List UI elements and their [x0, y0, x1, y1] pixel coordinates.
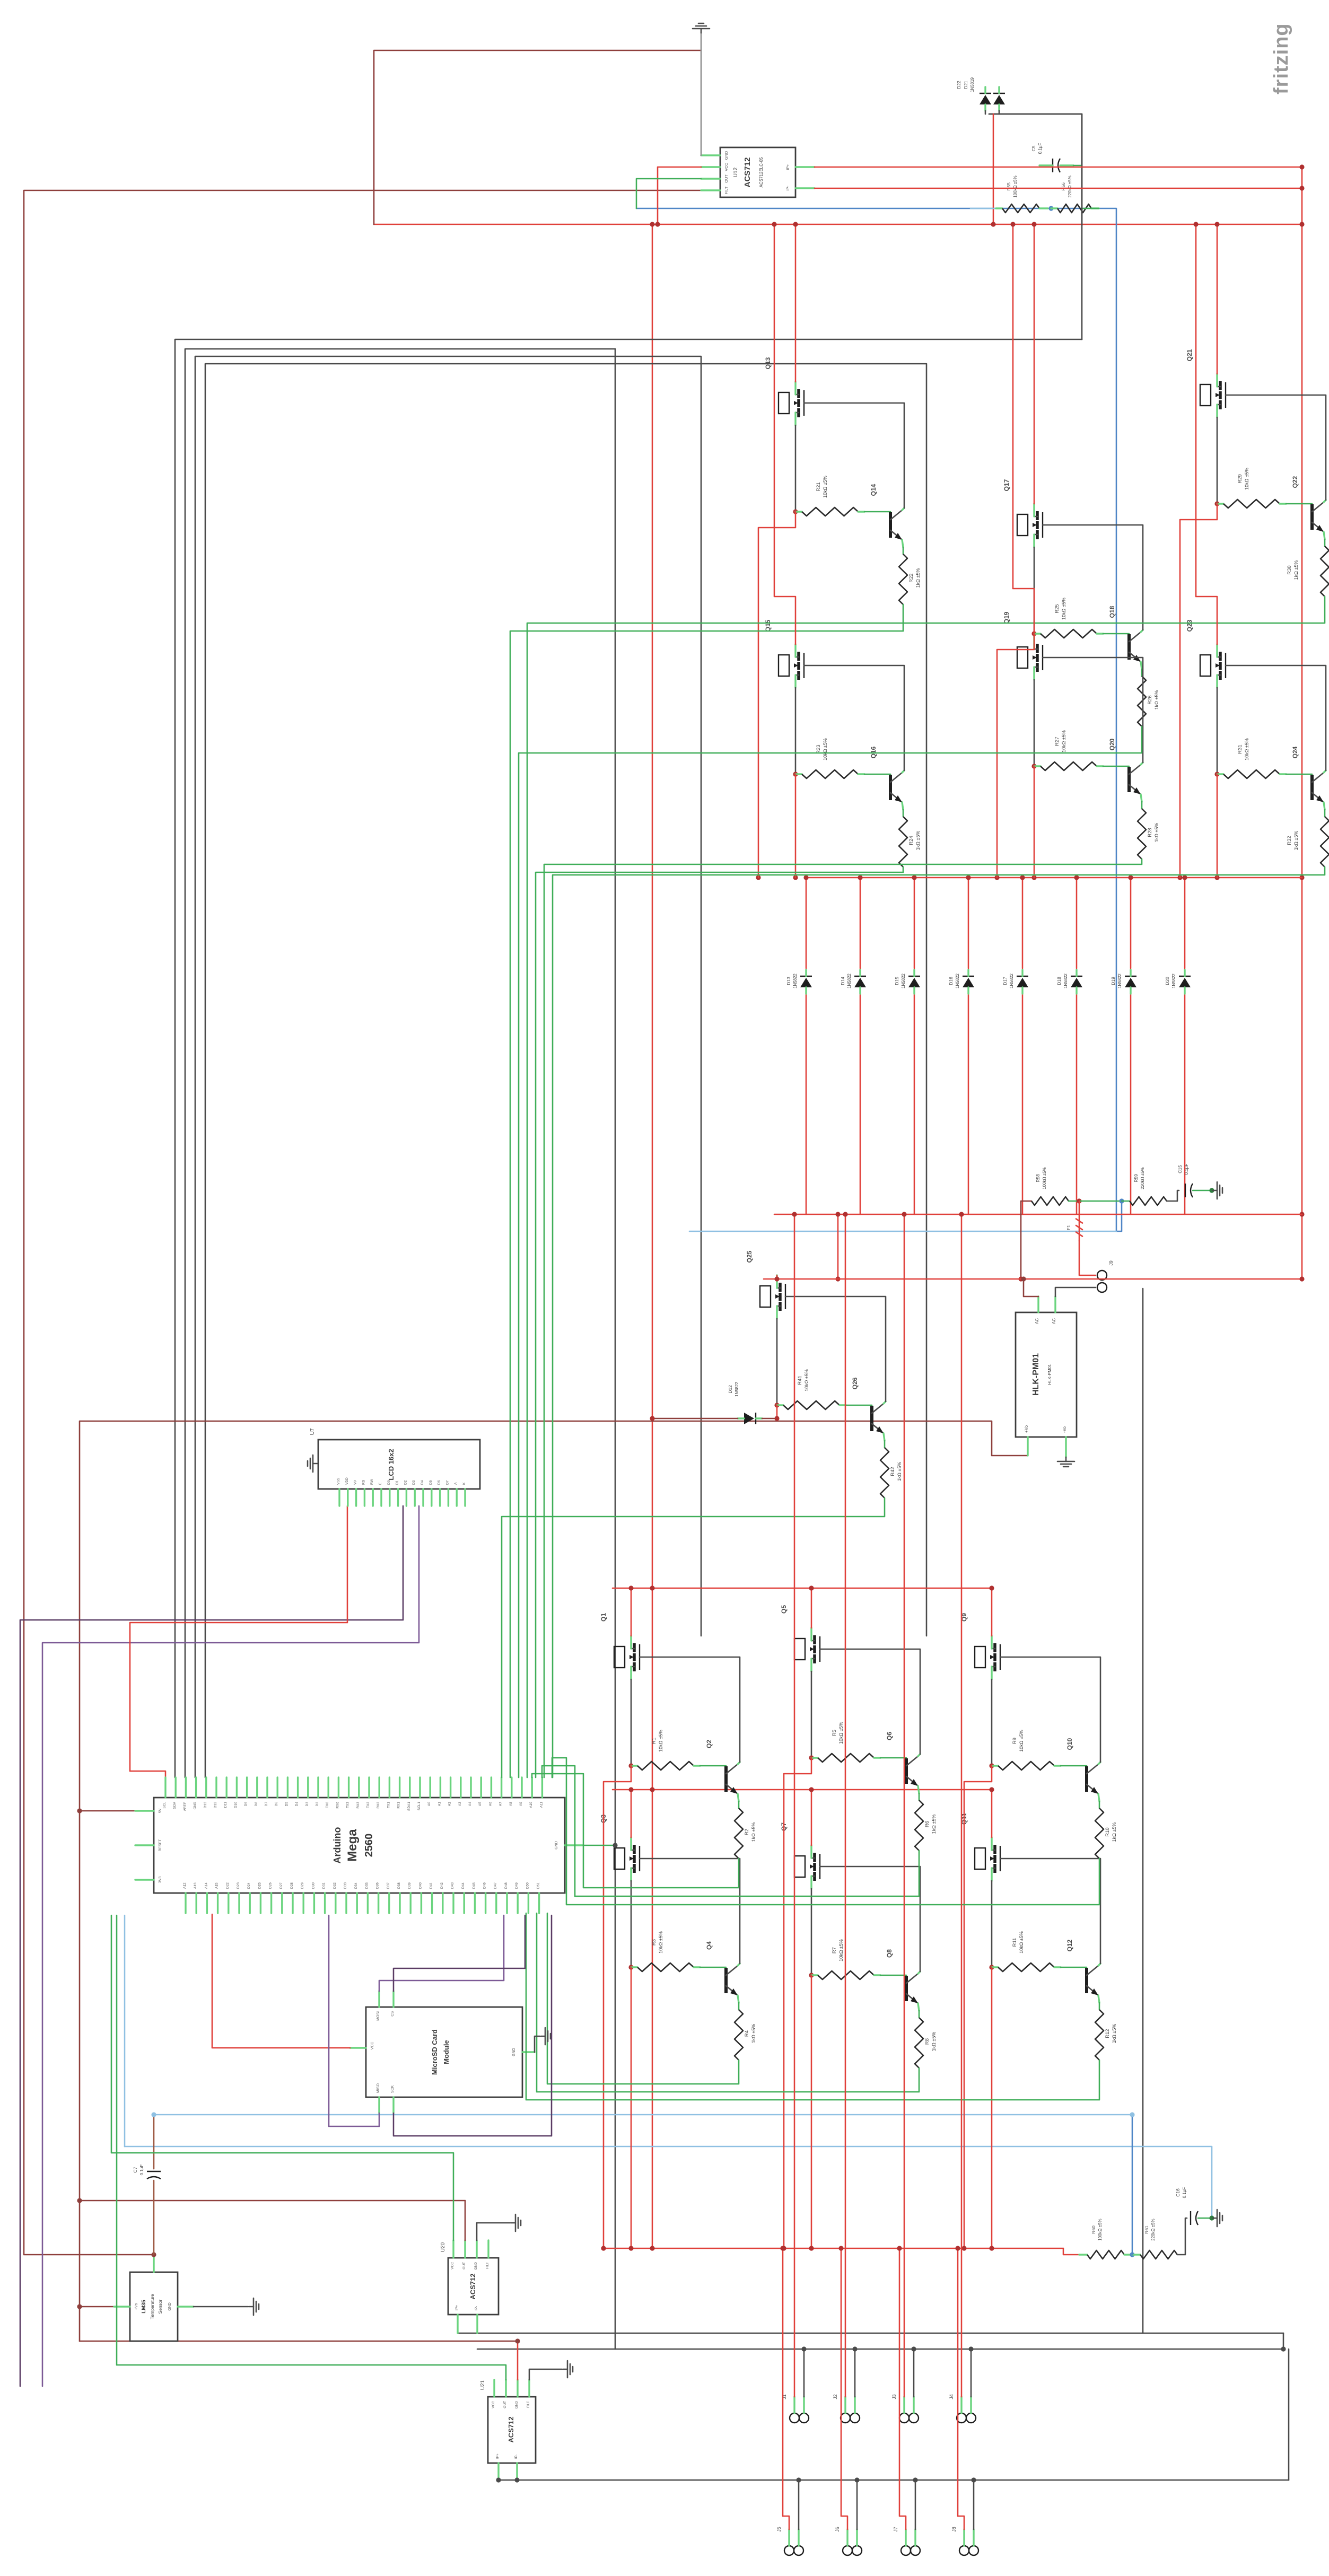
component-hlk-pm01[interactable]: HLK-PM01HLK-PM01ACAC+Vo-Vo	[1016, 1296, 1077, 1457]
r-base-ref: R30	[1287, 565, 1292, 574]
resistor	[1095, 2010, 1104, 2060]
out-lower	[784, 1758, 811, 2248]
npn-ref: Q26	[851, 1377, 859, 1389]
r-gate-ref: R21	[816, 482, 821, 491]
r-gate-value: 10kΩ ±5%	[1244, 468, 1249, 490]
r-gate-ref: R7	[832, 1947, 837, 1953]
terminal-pin	[969, 2546, 978, 2555]
junction-dot	[628, 1787, 633, 1792]
acs712-name: ACS712	[507, 2416, 515, 2442]
arduino-pin-label: RX3	[356, 1802, 360, 1809]
arduino-pin-label: D42	[440, 1882, 444, 1889]
junction-dot	[1299, 1276, 1304, 1281]
junction-dot	[1010, 222, 1015, 226]
junction-dot	[515, 2338, 520, 2343]
diode-triangle	[1125, 978, 1136, 987]
output-terminal[interactable]: J2	[833, 2394, 860, 2423]
mosfet-body	[779, 655, 789, 676]
terminal-pin	[790, 2413, 799, 2423]
lcd-pin-label: D6	[438, 1480, 441, 1485]
resistor	[915, 2018, 923, 2068]
junction-dot	[628, 2246, 633, 2250]
wire	[1043, 658, 1143, 763]
mosfet-driver-cell[interactable]: Q17R2510kΩ ±5%Q18R261kΩ ±5%	[1003, 479, 1159, 726]
resistor-value: 220kΩ ±5%	[1068, 176, 1072, 198]
diode-ref: D12	[728, 1385, 733, 1394]
junction-dot	[1021, 1276, 1026, 1281]
acs712-pin-label: OUT	[462, 2262, 466, 2270]
mosfet-body	[794, 1639, 805, 1660]
mosfet-body	[1017, 514, 1028, 536]
arduino-pin-label: D46	[483, 1882, 487, 1889]
hlk-body	[1016, 1312, 1077, 1437]
npn-ref: Q22	[1291, 476, 1299, 488]
lcd-ref: U7	[310, 1428, 316, 1435]
diode-triangle	[744, 1413, 754, 1424]
r-base-ref: R10	[1105, 1827, 1111, 1836]
junction-dot	[809, 1585, 814, 1590]
rc-network-mid[interactable]: R58100kΩ ±5%R59220kΩ ±5%C150.1µFF1	[1018, 1164, 1222, 1282]
mosfet-driver-cell[interactable]: Q3R310kΩ ±5%Q4R41kΩ ±5%	[600, 1815, 756, 2060]
output-terminal[interactable]: J1	[782, 2394, 809, 2423]
arduino-pin-label: D31	[322, 1882, 326, 1889]
cap-ref: C15	[1177, 1165, 1183, 1173]
junction-dot	[911, 2346, 916, 2351]
r-gate-ref: R25	[1054, 604, 1060, 613]
arduino-pin-label: D24	[247, 1882, 251, 1889]
lcd-pin-label: V0	[354, 1480, 357, 1485]
fritzing-watermark: fritzing	[1270, 23, 1292, 94]
arduino-pin-label: GND	[555, 1841, 558, 1850]
mosfet-driver-cell[interactable]: Q7R710kΩ ±5%Q8R81kΩ ±5%	[780, 1823, 937, 2068]
terminal-pin	[909, 2413, 919, 2423]
arduino-pin-label: A14	[204, 1882, 208, 1889]
r-gate-value: 10kΩ ±5%	[823, 476, 828, 498]
r-gate-ref: R1	[651, 1738, 657, 1744]
resistor-value: 100kΩ ±5%	[1098, 2219, 1103, 2241]
mosfet-ref: Q19	[1003, 611, 1010, 624]
terminal-pin	[794, 2546, 803, 2555]
junction-dot	[955, 2246, 960, 2250]
pin-stub	[902, 802, 903, 810]
resistor	[783, 1401, 840, 1409]
wire-acs3-gnd	[529, 2369, 562, 2380]
junction-dot	[792, 1212, 797, 1216]
component-lcd[interactable]: U7LCD 16x2VSSVDDV0RSRWED0D1D2D3D4D5D6D7A…	[308, 1428, 480, 1506]
arduino-pin-label: D7	[265, 1802, 268, 1807]
arduino-pin-label: D45	[472, 1882, 476, 1889]
resistor	[637, 1762, 694, 1770]
r-gate-value: 10kΩ ±5%	[1244, 738, 1249, 760]
diode-triangle	[1179, 978, 1191, 987]
fuse-ref: F1	[1066, 1225, 1071, 1230]
r-base-value: 1kΩ ±5%	[751, 1823, 756, 1842]
wire	[1087, 1764, 1098, 1774]
mosfet-body	[1200, 655, 1211, 676]
arduino-pin-label: 3V3	[159, 1877, 162, 1883]
r-base-value: 1kΩ ±5%	[915, 831, 921, 851]
junction-dot	[1031, 222, 1036, 226]
resistor	[1321, 817, 1329, 867]
terminal-pin	[843, 2546, 852, 2555]
resistor	[1223, 770, 1280, 778]
out-lower	[964, 1766, 992, 2248]
r-gate-ref: R31	[1237, 744, 1243, 753]
terminal-pin	[1097, 1283, 1107, 1292]
wire	[906, 1756, 918, 1766]
resistor	[1140, 2250, 1177, 2259]
ctl-green-upper	[519, 726, 1142, 1777]
resistor	[802, 507, 858, 516]
arduino-pin-label: D4	[295, 1802, 299, 1807]
wire-long-b	[185, 349, 615, 1777]
acs712-pin-label: VCC	[724, 163, 729, 171]
hlk-pin-label: +Vo	[1024, 1425, 1029, 1433]
wire-acs1-out	[636, 179, 701, 208]
arduino-pin-label: D22	[226, 1882, 230, 1889]
arduino-pin-label: RESET	[159, 1839, 162, 1852]
arduino-pin-label: TX2	[366, 1802, 370, 1808]
junction-dot	[968, 2346, 973, 2351]
arduino-pin-label: A2	[448, 1802, 452, 1806]
output-terminal[interactable]: J3	[891, 2394, 919, 2423]
mosfet-driver-cell[interactable]: Q9R910kΩ ±5%Q10R101kΩ ±5%	[960, 1613, 1117, 1859]
hlk-sub: HLK-PM01	[1047, 1364, 1052, 1385]
output-terminal[interactable]: J6	[835, 2527, 862, 2555]
diode-part: 1N5822	[847, 973, 852, 988]
wire	[1312, 773, 1324, 782]
arduino-pin-label: A4	[468, 1802, 472, 1806]
resistor	[802, 770, 858, 778]
junction-dot	[912, 875, 916, 880]
pin-stub	[884, 1433, 885, 1441]
terminal-pin	[784, 2546, 794, 2555]
junction-dot	[650, 2246, 654, 2250]
arduino-pin-label: D25	[258, 1882, 261, 1889]
arduino-pin-label: GND	[194, 1802, 197, 1810]
terminal-pin	[911, 2546, 920, 2555]
arduino-pin-label: AREF	[183, 1802, 187, 1811]
mosfet-driver-cell[interactable]: Q5R510kΩ ±5%Q6R61kΩ ±5%	[780, 1605, 937, 1851]
junction-dot	[772, 222, 776, 226]
flyback-diode-bank[interactable]: D131N5822D141N5822D151N5822D161N5822D171…	[756, 875, 1302, 1281]
arduino-pin-label: D10	[234, 1802, 238, 1808]
arduino-pin-label: TX1	[387, 1802, 390, 1808]
arduino-pin-label: A1	[438, 1802, 441, 1806]
junction-dot	[780, 2246, 785, 2250]
r-gate-value: 10kΩ ±5%	[658, 1730, 663, 1752]
wire	[1000, 1657, 1100, 1762]
lm35-name-1: LM35	[141, 2300, 147, 2314]
junction-dot	[1020, 875, 1025, 880]
ground-symbol	[1213, 1182, 1222, 1199]
mosfet-ref: Q15	[764, 619, 772, 632]
diode-part: 1N5822	[1063, 973, 1068, 988]
wire	[1000, 1859, 1100, 1964]
terminal-pin	[966, 2413, 976, 2423]
wire	[872, 1404, 884, 1413]
ground-symbol	[308, 1455, 317, 1472]
arduino-pin-label: D30	[311, 1882, 315, 1889]
lcd-pin-label: E	[379, 1482, 382, 1485]
junction-dot	[991, 222, 995, 226]
arduino-pin-label: A6	[488, 1802, 492, 1806]
rc-network-top[interactable]: D211N5819D22C50.1µFR55100kΩ ±5%R56220kΩ …	[956, 77, 1099, 226]
hlk-pin-label: AC	[1052, 1318, 1056, 1324]
resistor	[1031, 1197, 1069, 1205]
wire	[1079, 1241, 1096, 1275]
arduino-pin-label: D26	[269, 1882, 273, 1889]
cap-ref: C16	[1175, 2188, 1181, 2197]
arduino-pin-label: D51	[537, 1882, 540, 1889]
arduino-pin-label: A13	[194, 1882, 197, 1889]
mosfet-driver-cell[interactable]: Q11R1110kΩ ±5%Q12R121kΩ ±5%	[960, 1813, 1117, 2060]
output-terminal[interactable]: J5	[776, 2527, 803, 2555]
acs712-pin-label: FILT	[486, 2262, 489, 2269]
lcd-pin-label: D1	[396, 1480, 399, 1485]
ground-symbol	[693, 23, 710, 33]
acs712-pin-label: IP+	[785, 164, 790, 170]
acs712-pin-label: VCC	[451, 2262, 454, 2270]
wire	[820, 1867, 920, 1972]
mosfet-ref: Q13	[764, 357, 772, 369]
arduino-pin-label: D34	[354, 1882, 358, 1889]
ground-symbol	[1057, 1457, 1074, 1467]
hlk-name: HLK-PM01	[1031, 1353, 1041, 1396]
resistor	[637, 1963, 694, 1972]
resistor	[1041, 762, 1097, 770]
r-base-value: 1kΩ ±5%	[931, 2032, 937, 2052]
arduino-pin-label: D27	[279, 1882, 283, 1889]
wire-long-c	[195, 356, 701, 1777]
arduino-pin-label: D36	[376, 1882, 380, 1889]
resistor	[1087, 2250, 1124, 2259]
diode-part: 1N5822	[793, 973, 798, 988]
junction-dot	[1281, 2346, 1286, 2351]
junction-dot	[897, 2246, 902, 2250]
r-gate-ref: R41	[797, 1375, 803, 1385]
output-terminal[interactable]: J4	[949, 2394, 976, 2423]
resistor	[1041, 629, 1097, 638]
resistor-value: 100kΩ ±5%	[1042, 1167, 1047, 1189]
diode-triangle	[908, 978, 920, 987]
r-base-ref: R32	[1287, 836, 1292, 845]
resistor	[998, 1963, 1054, 1972]
diode-ref: D15	[894, 977, 899, 985]
r-base-value: 1kΩ ±5%	[897, 1462, 902, 1482]
resistor	[1095, 1808, 1104, 1859]
npn-ref: Q12	[1066, 1939, 1073, 1951]
fritzing-schematic-page: U12ACS712ACS712ELC-05GNDVCCOUTFILTIP+IP-…	[0, 0, 1329, 2576]
r-gate-value: 10kΩ ±5%	[658, 1931, 663, 1953]
arduino-pin-label: A0	[427, 1802, 431, 1806]
lcd-pin-label: A	[454, 1482, 458, 1485]
resistor	[1138, 676, 1146, 726]
pin-stub	[1098, 1995, 1099, 2003]
diode-triangle	[963, 978, 974, 987]
mosfet-body	[975, 1848, 985, 1869]
wire	[726, 1764, 738, 1774]
component-acs712-3[interactable]: U21ACS712VCCOUTGNDFILTIP+IP-	[480, 2380, 536, 2480]
component-microsd[interactable]: MicroSD CardModuleMOSICSVCCMISOSCKGND	[350, 1991, 535, 2113]
component-acs712-main[interactable]: U12ACS712ACS712ELC-05GNDVCCOUTFILTIP+IP-	[701, 147, 815, 197]
junction-dot	[989, 2246, 994, 2250]
diode-part: 1N5819	[970, 77, 975, 92]
ground-symbol	[511, 2214, 521, 2231]
junction-dot	[971, 2477, 976, 2482]
ctl-green-lower	[547, 1913, 739, 2084]
r-gate-ref: R9	[1012, 1738, 1018, 1744]
mosfet-driver-cell[interactable]: Q19R2710kΩ ±5%Q20R281kΩ ±5%	[1003, 611, 1159, 859]
microsd-pin-label: VCC	[371, 2042, 374, 2050]
junction-dot	[858, 875, 862, 880]
junction-dot	[496, 2477, 501, 2482]
output-terminal[interactable]: J7	[893, 2527, 920, 2555]
acs712-body	[720, 147, 795, 197]
arduino-pin-label: RX0	[336, 1802, 339, 1809]
component-lm35[interactable]: LM35TemperatureSensor+VsGND	[114, 2255, 194, 2341]
diode-ref: D21	[963, 81, 968, 89]
npn-ref: Q20	[1108, 738, 1116, 750]
r-gate-ref: R29	[1237, 474, 1243, 483]
mosfet-driver-cell[interactable]: Q13R2110kΩ ±5%Q14R221kΩ ±5%	[764, 357, 921, 604]
schematic-canvas: U12ACS712ACS712ELC-05GNDVCCOUTFILTIP+IP-…	[0, 0, 1329, 2576]
mosfet-ref: Q21	[1186, 349, 1193, 361]
component-acs712-2[interactable]: U20ACS712VCCOUTGNDFILTIP+IP-	[440, 2240, 499, 2333]
wire	[820, 1649, 920, 1754]
feed-upper-jog	[774, 224, 795, 644]
resistor	[1321, 546, 1329, 597]
arduino-pin-label: D11	[224, 1802, 228, 1808]
arduino-pin-label: A7	[499, 1802, 503, 1806]
mosfet-body	[794, 1856, 805, 1877]
r-base-ref: R42	[890, 1467, 896, 1476]
arduino-name-3: 2560	[363, 1834, 375, 1857]
arduino-pin-label: TX3	[346, 1802, 350, 1808]
arduino-pin-label: D38	[397, 1882, 401, 1889]
diode-triangle	[980, 95, 991, 104]
resistor	[735, 1808, 743, 1859]
diode-triangle	[1017, 978, 1028, 987]
junction-dot	[959, 1212, 964, 1216]
r-base-value: 1kΩ ±5%	[751, 2024, 756, 2044]
diode-ref: D18	[1056, 977, 1062, 985]
acs712-pin-label: IP+	[496, 2454, 500, 2459]
pin-stub	[738, 1995, 739, 2003]
mosfet-ref: Q1	[600, 1613, 607, 1622]
wire-hlk-ac1	[1024, 1279, 1038, 1296]
feed-upper-jog	[1013, 224, 1034, 636]
resistor-value: 220kΩ ±5%	[1140, 1167, 1145, 1189]
arduino-pin-label: SCL	[163, 1802, 167, 1809]
r-gate-value: 10kΩ ±5%	[838, 1722, 844, 1744]
npn-ref: Q8	[886, 1949, 893, 1958]
r-gate-ref: R5	[832, 1730, 837, 1736]
r-base-value: 1kΩ ±5%	[1112, 2024, 1117, 2044]
diode-ref: D22	[956, 81, 961, 89]
wire	[804, 665, 904, 770]
junction-dot	[852, 2346, 857, 2351]
junction-dot	[1299, 164, 1304, 169]
out-lower	[604, 1766, 631, 2248]
arduino-pin-label: D50	[526, 1882, 529, 1889]
wire-long-d	[205, 364, 926, 1777]
wire	[1167, 1190, 1179, 1201]
out-upper	[997, 634, 1034, 878]
arduino-name-1: Arduino	[332, 1827, 343, 1864]
r-base-ref: R26	[1147, 695, 1153, 704]
diode-part: 1N5822	[901, 973, 906, 988]
resistor	[899, 817, 907, 867]
junction-dot	[796, 2477, 801, 2482]
npn-ref: Q6	[886, 1732, 893, 1740]
r-gate-value: 10kΩ ±5%	[823, 738, 828, 760]
diode-ref: D17	[1002, 977, 1008, 985]
cap-value: 0.1µF	[1184, 1164, 1189, 1175]
pin-stub	[1141, 794, 1142, 802]
wire-terminal-red	[841, 2248, 847, 2529]
arduino-pin-label: D29	[301, 1882, 304, 1889]
ground-symbol	[563, 2361, 573, 2378]
junction-dot	[774, 1276, 779, 1281]
arduino-pin-label: A9	[519, 1802, 523, 1806]
junction-dot	[774, 1416, 779, 1421]
cap-value: 0.1µF	[139, 2165, 144, 2176]
lm35-pin-label: +Vs	[135, 2303, 138, 2310]
ctl-green-aux	[502, 1498, 885, 1777]
resistor	[1002, 204, 1039, 213]
npn-ref: Q18	[1108, 606, 1116, 618]
hlk-pin-label: AC	[1035, 1318, 1039, 1324]
wire-acs1-vcc	[658, 167, 701, 224]
mosfet-driver-cell[interactable]: Q21R2910kΩ ±5%Q22R301kΩ ±5%	[1186, 349, 1329, 597]
wire-left-edge	[24, 190, 701, 2255]
arduino-pin-label: D33	[344, 1882, 347, 1889]
resistor-ref: R58	[1035, 1174, 1041, 1182]
mosfet-driver-cell[interactable]: Q25R4110kΩ ±5%Q26R421kΩ ±5%	[746, 1250, 902, 1498]
wire	[890, 510, 902, 520]
mosfet-driver-cell[interactable]: Q1R110kΩ ±5%Q2R21kΩ ±5%	[600, 1613, 756, 1859]
microsd-pin-label: MISO	[377, 2083, 380, 2093]
r-gate-value: 10kΩ ±5%	[1061, 598, 1066, 620]
pin-stub	[1324, 802, 1325, 810]
resistor	[899, 554, 907, 604]
r-gate-ref: R11	[1012, 1938, 1018, 1947]
arduino-pin-label: D6	[275, 1802, 278, 1807]
junction-dot	[809, 1787, 814, 1792]
diode-ref: D14	[840, 977, 845, 985]
output-terminal[interactable]: J8	[951, 2527, 978, 2555]
connector-ref: J6	[835, 2527, 840, 2532]
r-gate-value: 10kΩ ±5%	[804, 1369, 809, 1391]
terminal-pin	[959, 2546, 969, 2555]
junction-dot	[902, 1212, 906, 1216]
cap-ref: C5	[1031, 145, 1036, 151]
arduino-pin-label: D43	[451, 1882, 454, 1889]
component-arduino-mega[interactable]: ArduinoMega2560SCLSDAAREFGNDD13D12D11D10…	[135, 1777, 583, 1913]
ground-symbol	[249, 2298, 259, 2315]
junction-dot	[1214, 222, 1219, 226]
junction-dot	[1299, 222, 1304, 226]
ground-symbol	[1213, 2210, 1222, 2227]
lcd-pin-label: D7	[445, 1480, 449, 1485]
mosfet-driver-cell[interactable]: Q15R2310kΩ ±5%Q16R241kΩ ±5%	[764, 619, 921, 867]
ac-input-connector[interactable]: J9	[1097, 1260, 1114, 1292]
wire-hlk-ac2	[1055, 1287, 1096, 1296]
mosfet-driver-cell[interactable]: Q23R3110kΩ ±5%Q24R321kΩ ±5%	[1186, 619, 1329, 867]
rc-network-bottom[interactable]: R60100kΩ ±5%R61220kΩ ±5%C160.1µF	[1079, 2112, 1222, 2259]
resistor-ref: R55	[1006, 182, 1011, 191]
